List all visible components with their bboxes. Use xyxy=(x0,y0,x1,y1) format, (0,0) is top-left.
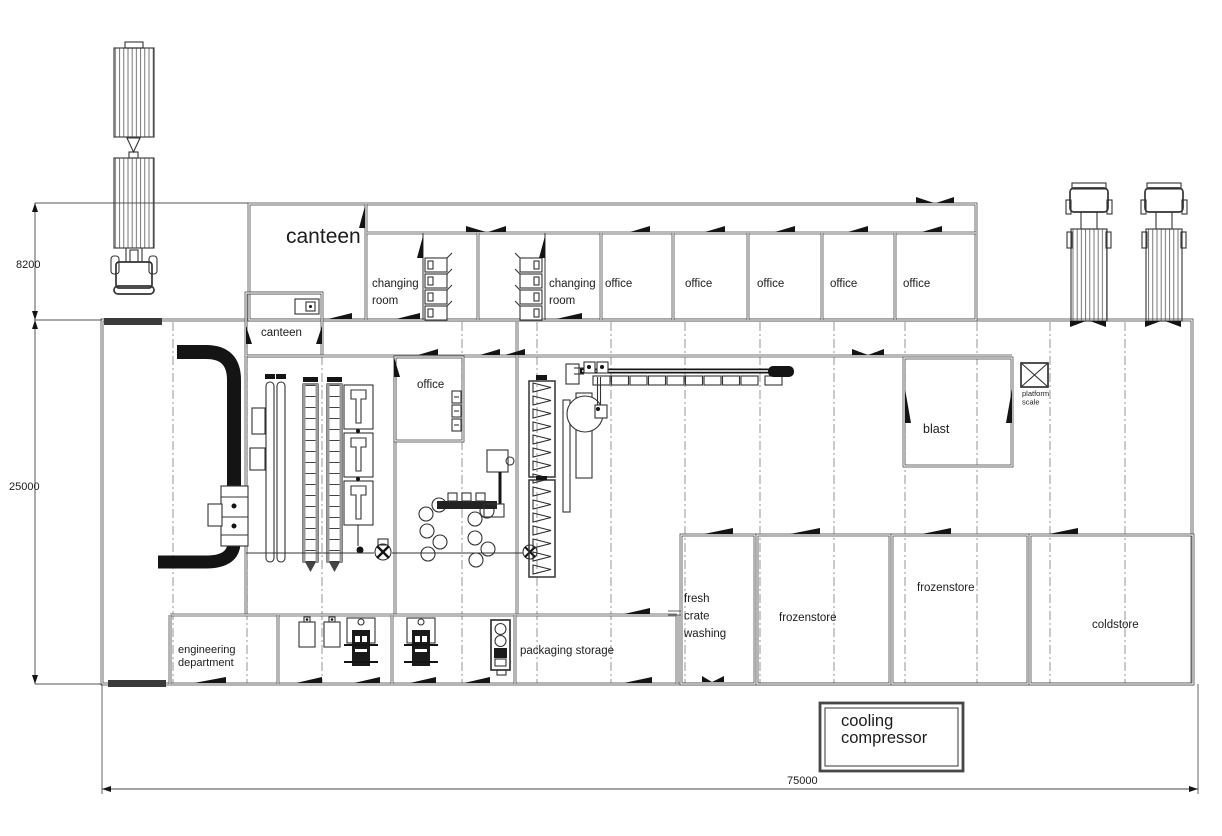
label-frozenstore-large: frozenstore xyxy=(917,582,975,594)
floor-plan-drawing: canteen canteen changingroom changingroo… xyxy=(0,0,1222,836)
sink-icon xyxy=(295,299,319,314)
paper-background xyxy=(0,0,1222,836)
label-office-top-2: office xyxy=(685,278,712,290)
floor-plan-canvas: canteen canteen changingroom changingroo… xyxy=(0,0,1222,836)
dock-door-bottom xyxy=(108,680,166,687)
dim-label-8200: 8200 xyxy=(16,259,40,271)
label-canteen-main: canteen xyxy=(286,225,361,248)
label-canteen-small: canteen xyxy=(261,327,302,339)
label-office-top-1: office xyxy=(605,278,632,290)
dock-door-left xyxy=(104,318,162,325)
dim-label-25000: 25000 xyxy=(9,481,40,493)
label-frozenstore-small: frozenstore xyxy=(779,612,837,624)
dim-label-75000: 75000 xyxy=(787,775,818,787)
label-office-top-3: office xyxy=(757,278,784,290)
label-engineering-department: engineeringdepartment xyxy=(178,644,236,669)
label-office-hall: office xyxy=(417,379,444,391)
label-coldstore: coldstore xyxy=(1092,619,1139,631)
belt-conveyor-2 xyxy=(327,377,342,572)
belt-conveyor-1 xyxy=(303,377,318,572)
label-packaging-storage: packaging storage xyxy=(520,645,614,657)
label-office-top-4: office xyxy=(830,278,857,290)
label-blast: blast xyxy=(923,422,950,436)
screw-conveyors xyxy=(529,375,555,577)
label-office-top-5: office xyxy=(903,278,930,290)
